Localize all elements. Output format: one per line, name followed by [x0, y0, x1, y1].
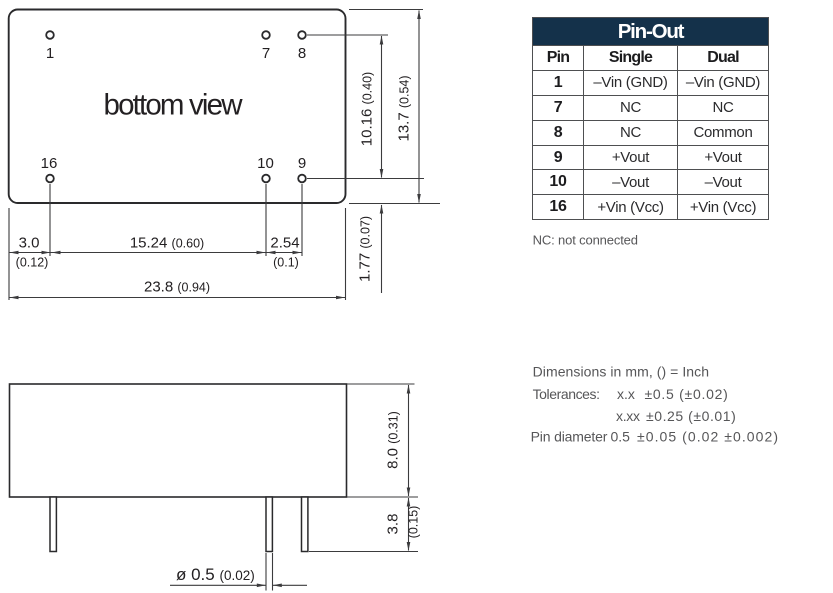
svg-text:3.8: 3.8	[385, 514, 402, 535]
svg-text:15.24 (0.60): 15.24 (0.60)	[130, 235, 204, 252]
svg-text:(0.15): (0.15)	[407, 506, 421, 539]
svg-text:1: 1	[46, 45, 54, 62]
svg-text:3.0: 3.0	[19, 235, 40, 252]
svg-text:±0.5 (±0.02): ±0.5 (±0.02)	[645, 386, 728, 402]
svg-text:Pin diameter: Pin diameter	[531, 429, 608, 445]
svg-text:x.x: x.x	[617, 386, 635, 402]
svg-text:NC: not connected: NC: not connected	[533, 232, 638, 247]
svg-text:9: 9	[298, 155, 306, 172]
svg-text:±0.05 (0.02 ±0.002): ±0.05 (0.02 ±0.002)	[637, 429, 778, 445]
svg-text:Tolerances:: Tolerances:	[533, 386, 600, 402]
svg-text:x.xx: x.xx	[616, 408, 640, 424]
svg-text:13.7 (0.54): 13.7 (0.54)	[396, 75, 413, 141]
svg-text:10: 10	[257, 155, 274, 172]
svg-text:8.0 (0.31): 8.0 (0.31)	[385, 411, 402, 469]
svg-text:(0.1): (0.1)	[273, 256, 299, 270]
svg-text:±0.25 (±0.01): ±0.25 (±0.01)	[646, 408, 736, 424]
svg-text:(0.12): (0.12)	[16, 256, 49, 270]
svg-text:1.77 (0.07): 1.77 (0.07)	[357, 216, 374, 282]
svg-text:10.16 (0.40): 10.16 (0.40)	[359, 72, 376, 146]
svg-text:16: 16	[41, 155, 58, 172]
svg-text:7: 7	[262, 45, 270, 62]
svg-text:23.8 (0.94): 23.8 (0.94)	[144, 279, 210, 296]
svg-text:2.54: 2.54	[270, 235, 299, 252]
svg-text:bottom view: bottom view	[104, 89, 244, 122]
svg-text:ø 0.5 (0.02): ø 0.5 (0.02)	[176, 565, 255, 584]
svg-text:8: 8	[298, 45, 306, 62]
svg-text:0.5: 0.5	[611, 429, 631, 445]
svg-text:Dimensions in mm, () = Inch: Dimensions in mm, () = Inch	[533, 364, 709, 380]
